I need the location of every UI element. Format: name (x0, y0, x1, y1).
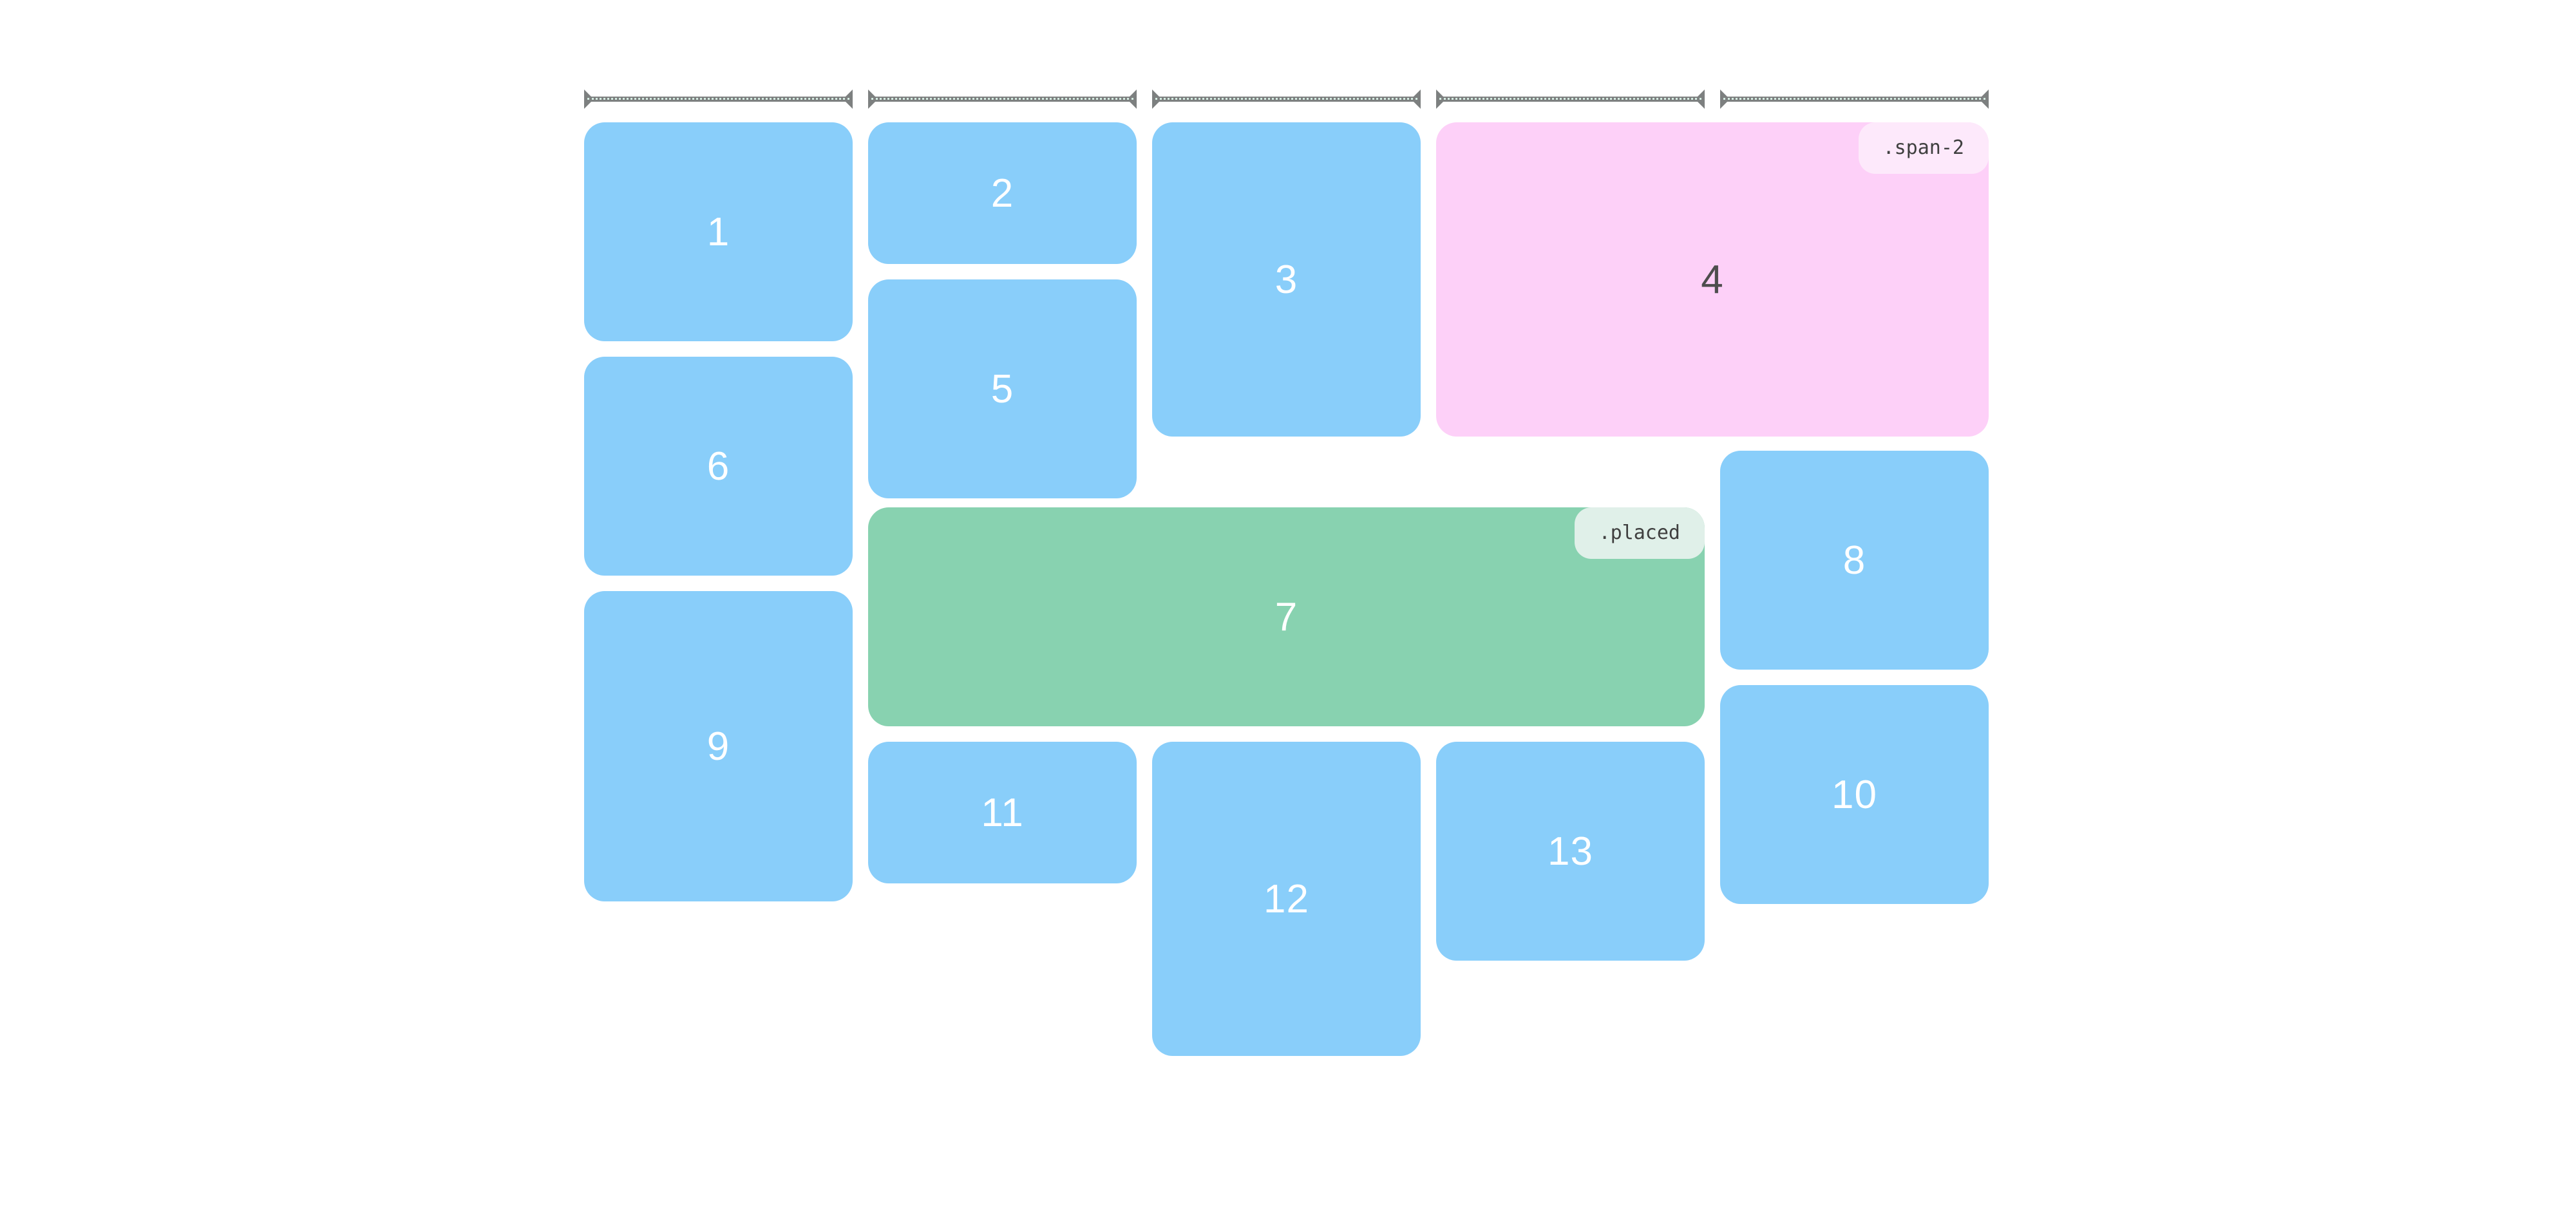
item-class-badge: .placed (1575, 507, 1705, 559)
ruler-dotted-line (587, 98, 849, 100)
grid-item-8: 8 (1720, 451, 1989, 670)
column-ruler-segment (868, 89, 1137, 109)
grid-item-2: 2 (868, 122, 1137, 264)
item-number: 2 (991, 171, 1014, 216)
ruler-dotted-line (1439, 98, 1701, 100)
item-number: 3 (1275, 257, 1298, 303)
column-ruler-segment (584, 89, 853, 109)
item-number: 1 (707, 209, 730, 255)
masonry-demo-canvas: 1234.span-2567.placed8910111213 (0, 0, 2576, 1224)
grid-item-12: 12 (1152, 742, 1421, 1056)
grid-item-7: 7.placed (868, 507, 1705, 726)
item-number: 12 (1264, 876, 1309, 922)
item-number: 4 (1701, 257, 1723, 303)
item-number: 9 (707, 724, 730, 769)
item-number: 6 (707, 444, 730, 489)
item-number: 8 (1843, 538, 1866, 583)
ruler-dotted-line (871, 98, 1133, 100)
grid-item-11: 11 (868, 742, 1137, 883)
grid-item-13: 13 (1436, 742, 1705, 961)
column-ruler-segment (1720, 89, 1989, 109)
grid-item-10: 10 (1720, 685, 1989, 904)
grid-item-3: 3 (1152, 122, 1421, 437)
ruler-dotted-line (1155, 98, 1417, 100)
column-ruler-segment (1152, 89, 1421, 109)
item-number: 10 (1832, 772, 1877, 818)
grid-item-9: 9 (584, 591, 853, 901)
item-number: 11 (981, 790, 1023, 836)
grid-item-5: 5 (868, 279, 1137, 498)
item-number: 5 (991, 366, 1014, 412)
grid-item-6: 6 (584, 357, 853, 576)
item-number: 7 (1275, 594, 1298, 640)
grid-item-1: 1 (584, 122, 853, 341)
item-number: 13 (1548, 829, 1593, 874)
ruler-dotted-line (1723, 98, 1985, 100)
item-class-badge: .span-2 (1859, 122, 1989, 174)
column-ruler-segment (1436, 89, 1705, 109)
grid-item-4: 4.span-2 (1436, 122, 1989, 437)
